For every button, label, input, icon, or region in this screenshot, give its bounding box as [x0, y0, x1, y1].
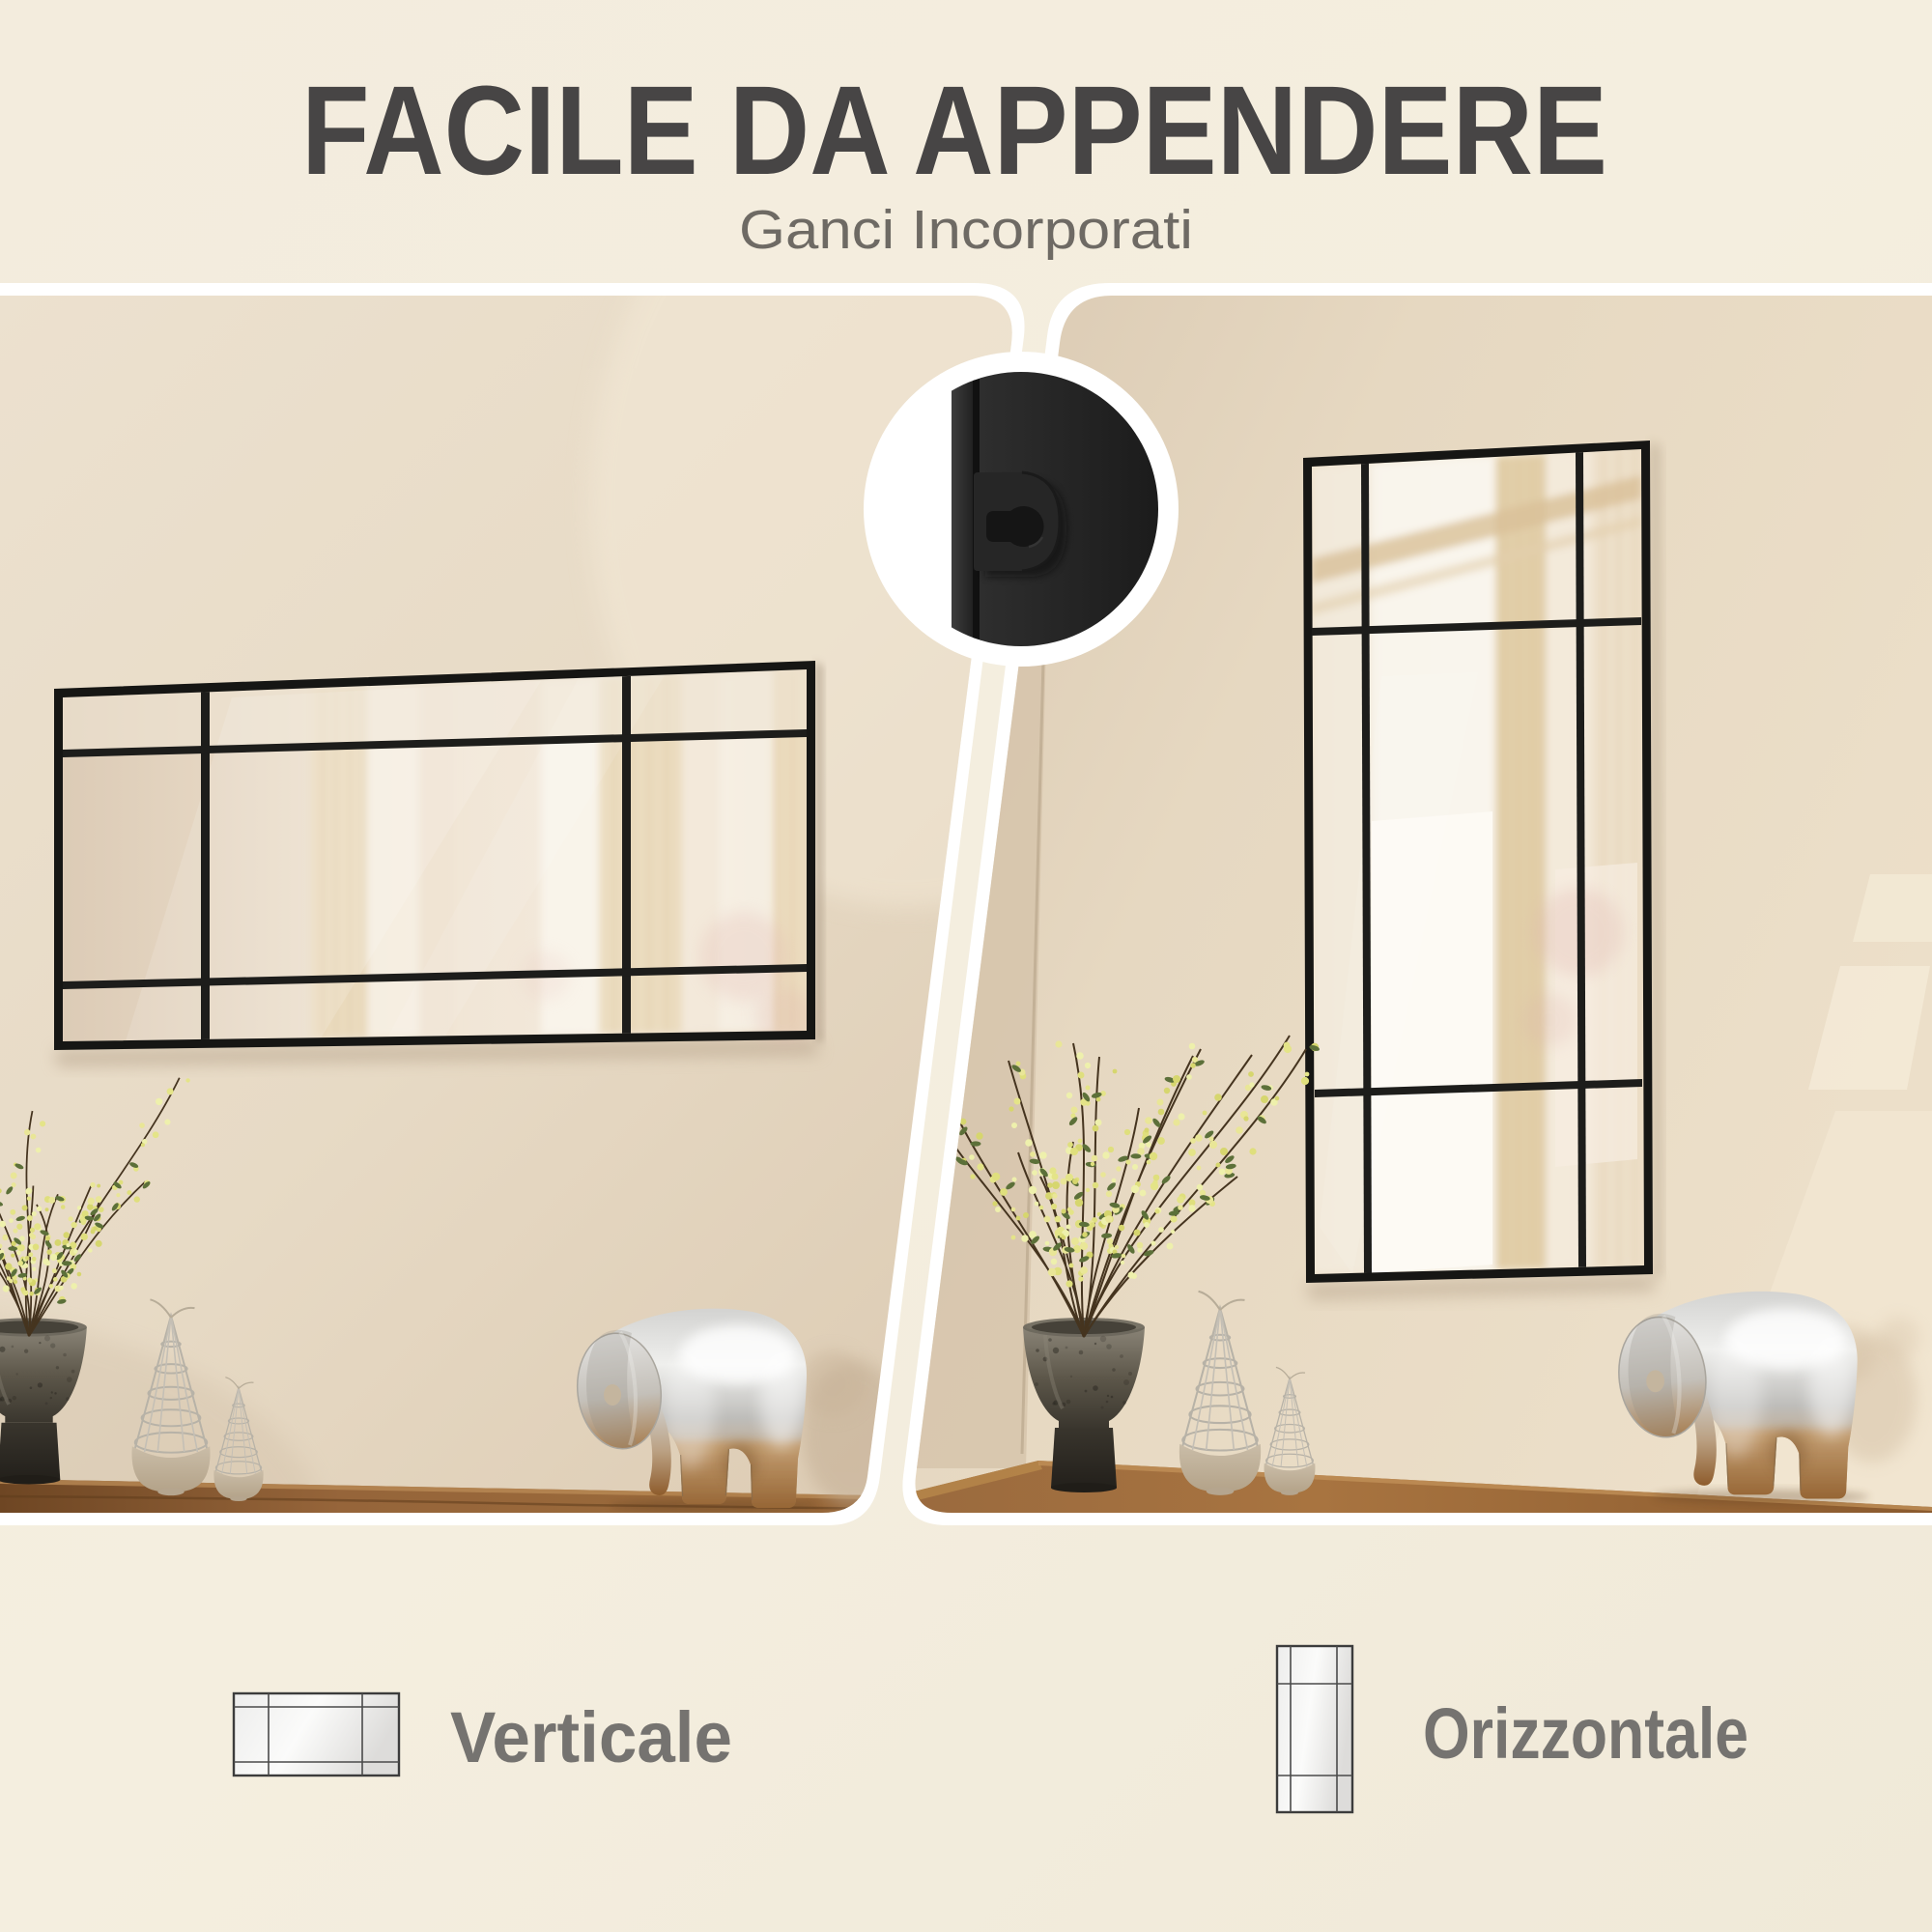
- svg-text:Verticale: Verticale: [450, 1697, 732, 1777]
- svg-text:Ganci Incorporati: Ganci Incorporati: [739, 199, 1193, 261]
- svg-text:FACILE DA APPENDERE: FACILE DA APPENDERE: [301, 59, 1607, 201]
- svg-text:Orizzontale: Orizzontale: [1423, 1693, 1748, 1774]
